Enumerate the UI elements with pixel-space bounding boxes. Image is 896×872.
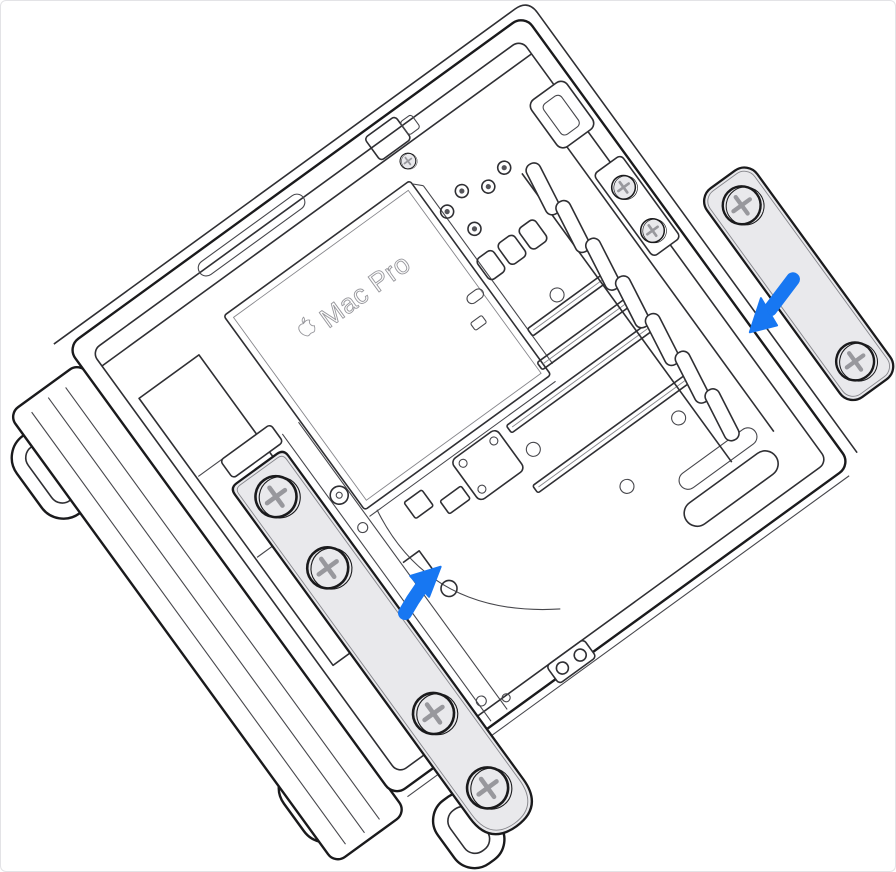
illustration-svg: Mac Pro <box>1 1 896 872</box>
mac-pro-illustration: Mac Pro <box>0 0 896 872</box>
